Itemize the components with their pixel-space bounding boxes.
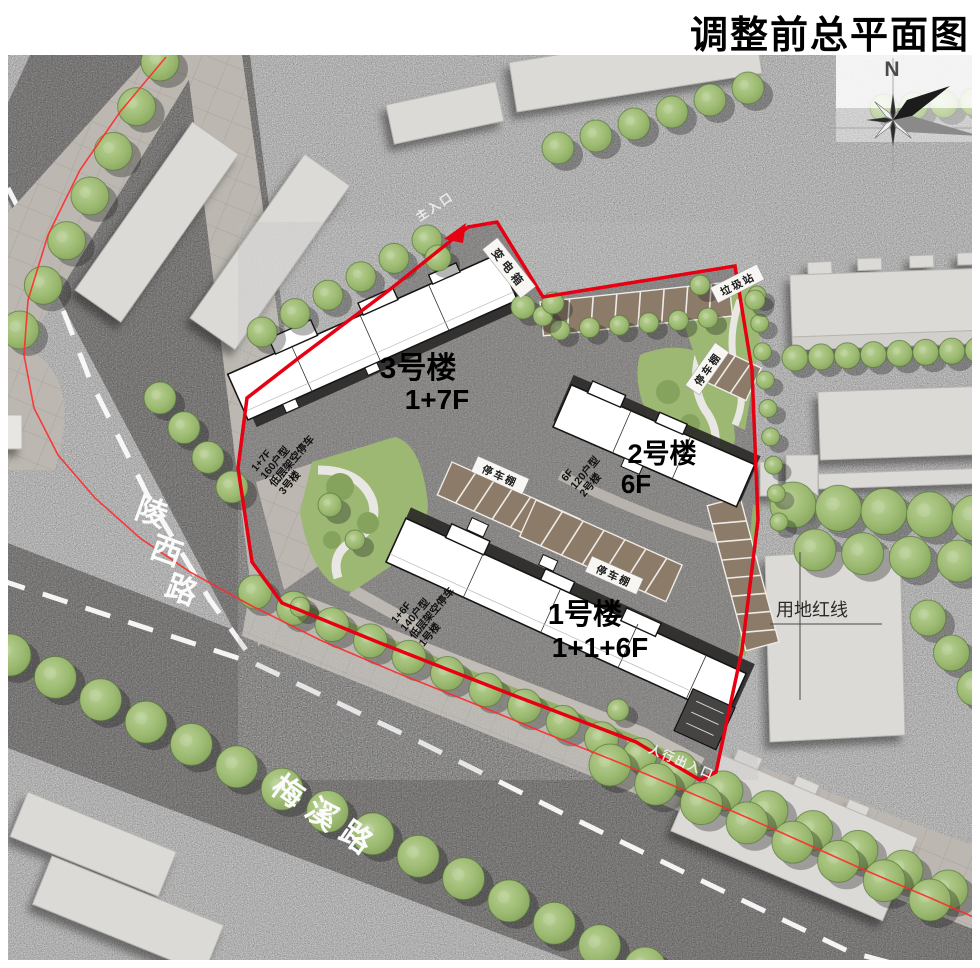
boundary-label: 用地红线 bbox=[776, 600, 848, 620]
site-plan-page: 调整前总平面图 bbox=[0, 0, 980, 968]
building-2-floors: 6F bbox=[621, 469, 651, 499]
site-plan-canvas: 主入口 变电箱 垃圾站 停车棚 停车棚 bbox=[0, 0, 980, 968]
building-3-floors: 1+7F bbox=[405, 384, 470, 415]
building-3-name: 3号楼 bbox=[380, 352, 457, 385]
building-1-floors: 1+1+6F bbox=[552, 632, 649, 663]
north-label: N bbox=[884, 58, 899, 81]
building-1-name: 1号楼 bbox=[548, 598, 622, 631]
building-2-name: 2号楼 bbox=[627, 439, 696, 469]
